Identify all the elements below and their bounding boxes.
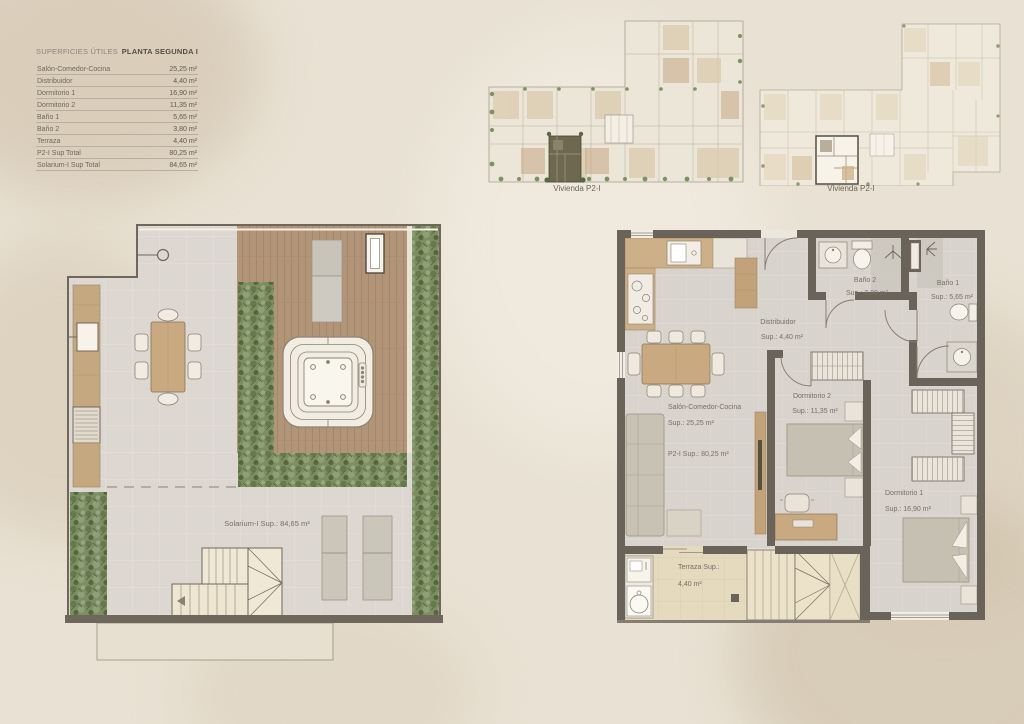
distribuidor-label: Distribuidor — [760, 319, 796, 326]
site-plan-right-svg — [758, 16, 1008, 186]
table-title: SUPERFICIES ÚTILES PLANTA SEGUNDA I — [36, 47, 198, 56]
row-value: 25,25 m² — [169, 66, 197, 73]
row-value: 4,40 m² — [173, 138, 197, 145]
overview-right-caption: Vivienda P2-I — [809, 184, 893, 193]
row-label: Baño 2 — [37, 126, 59, 133]
plan-sheet-page: SUPERFICIES ÚTILES PLANTA SEGUNDA I Saló… — [0, 0, 1024, 724]
row-label: Baño 1 — [37, 114, 59, 121]
table-title-plan: PLANTA SEGUNDA I — [122, 47, 198, 56]
table-title-label: SUPERFICIES ÚTILES — [36, 47, 118, 56]
site-plan-right — [758, 16, 1008, 186]
highlighted-unit — [816, 136, 858, 184]
site-plan-left-svg — [487, 16, 745, 184]
overview-left-caption: Vivienda P2-I — [535, 184, 619, 193]
stair-core — [870, 134, 894, 156]
terraza-label: Terraza Sup.: — [678, 564, 720, 571]
salon-label: Salón-Comedor-Cocina — [668, 404, 741, 411]
row-value: 11,35 m² — [170, 102, 197, 109]
deck-edge-gap — [407, 225, 412, 453]
bano2-label: Baño 2 — [854, 277, 876, 284]
solarium-plan: Solarium-I Sup.: 84,65 m² — [25, 210, 455, 665]
total-sup-label: P2-I Sup.: 80,25 m² — [668, 451, 729, 458]
bath-niche — [911, 243, 919, 269]
bano1-sup-label: Sup.: 5,65 m² — [931, 294, 974, 301]
table-row: Baño 23,80 m² — [36, 123, 198, 135]
bench — [68, 285, 100, 487]
table-row: Baño 15,65 m² — [36, 111, 198, 123]
table-row: Salón-Comedor-Cocina25,25 m² — [36, 63, 198, 75]
dormitorio2-label: Dormitorio 2 — [793, 393, 831, 400]
row-label: Dormitorio 2 — [37, 102, 75, 109]
dormitorio1-label: Dormitorio 1 — [885, 490, 923, 497]
row-label: Terraza — [37, 138, 60, 145]
table-row: Solarium-I Sup Total84,65 m² — [36, 159, 198, 171]
roof-vent — [366, 234, 384, 273]
highlighted-unit — [549, 136, 581, 182]
salon-sup-label: Sup.: 25,25 m² — [668, 420, 715, 427]
row-value: 80,25 m² — [169, 150, 197, 157]
dormitorio2-sup-label: Sup.: 11,35 m² — [792, 408, 838, 415]
terraza-sup-label: 4,40 m² — [678, 581, 702, 588]
row-value: 4,40 m² — [173, 78, 197, 85]
bano1-label: Baño 1 — [937, 280, 959, 287]
skylight — [312, 240, 342, 322]
lower-roof-extension — [97, 623, 333, 660]
tv-unit — [755, 412, 766, 534]
apartment-plan-svg: Baño 2 Sup.: 3,80 m² Baño 1 Sup.: 5,65 m… — [615, 228, 990, 628]
distribuidor-sup-label: Sup.: 4,40 m² — [761, 334, 804, 341]
drain-marker — [731, 594, 739, 602]
table-row: P2-I Sup Total80,25 m² — [36, 147, 198, 159]
row-label: Dormitorio 1 — [37, 90, 75, 97]
row-label: Salón-Comedor-Cocina — [37, 66, 110, 73]
row-label: Distribuidor — [37, 78, 72, 85]
table-rows: Salón-Comedor-Cocina25,25 m² Distribuido… — [36, 63, 198, 171]
hot-tub — [283, 337, 373, 427]
site-plan-left — [487, 16, 745, 184]
row-value: 3,80 m² — [173, 126, 197, 133]
solarium-area-label: Solarium-I Sup.: 84,65 m² — [224, 519, 310, 528]
table-row: Terraza4,40 m² — [36, 135, 198, 147]
stairs-apartment — [747, 550, 860, 620]
solarium-plan-svg: Solarium-I Sup.: 84,65 m² — [25, 210, 455, 665]
row-label: Solarium-I Sup Total — [37, 162, 100, 169]
apartment-plan: Baño 2 Sup.: 3,80 m² Baño 1 Sup.: 5,65 m… — [615, 228, 990, 628]
row-value: 16,90 m² — [169, 90, 197, 97]
bano2-sup-label: Sup.: 3,80 m² — [846, 290, 889, 297]
dormitorio1-sup-label: Sup.: 16,90 m² — [885, 506, 932, 513]
wardrobe-dorm2 — [811, 352, 863, 380]
areas-table: SUPERFICIES ÚTILES PLANTA SEGUNDA I Saló… — [36, 47, 198, 171]
row-value: 5,65 m² — [173, 114, 197, 121]
row-value: 84,65 m² — [169, 162, 197, 169]
row-label: P2-I Sup Total — [37, 150, 81, 157]
table-row: Dormitorio 116,90 m² — [36, 87, 198, 99]
table-row: Dormitorio 211,35 m² — [36, 99, 198, 111]
table-row: Distribuidor4,40 m² — [36, 75, 198, 87]
